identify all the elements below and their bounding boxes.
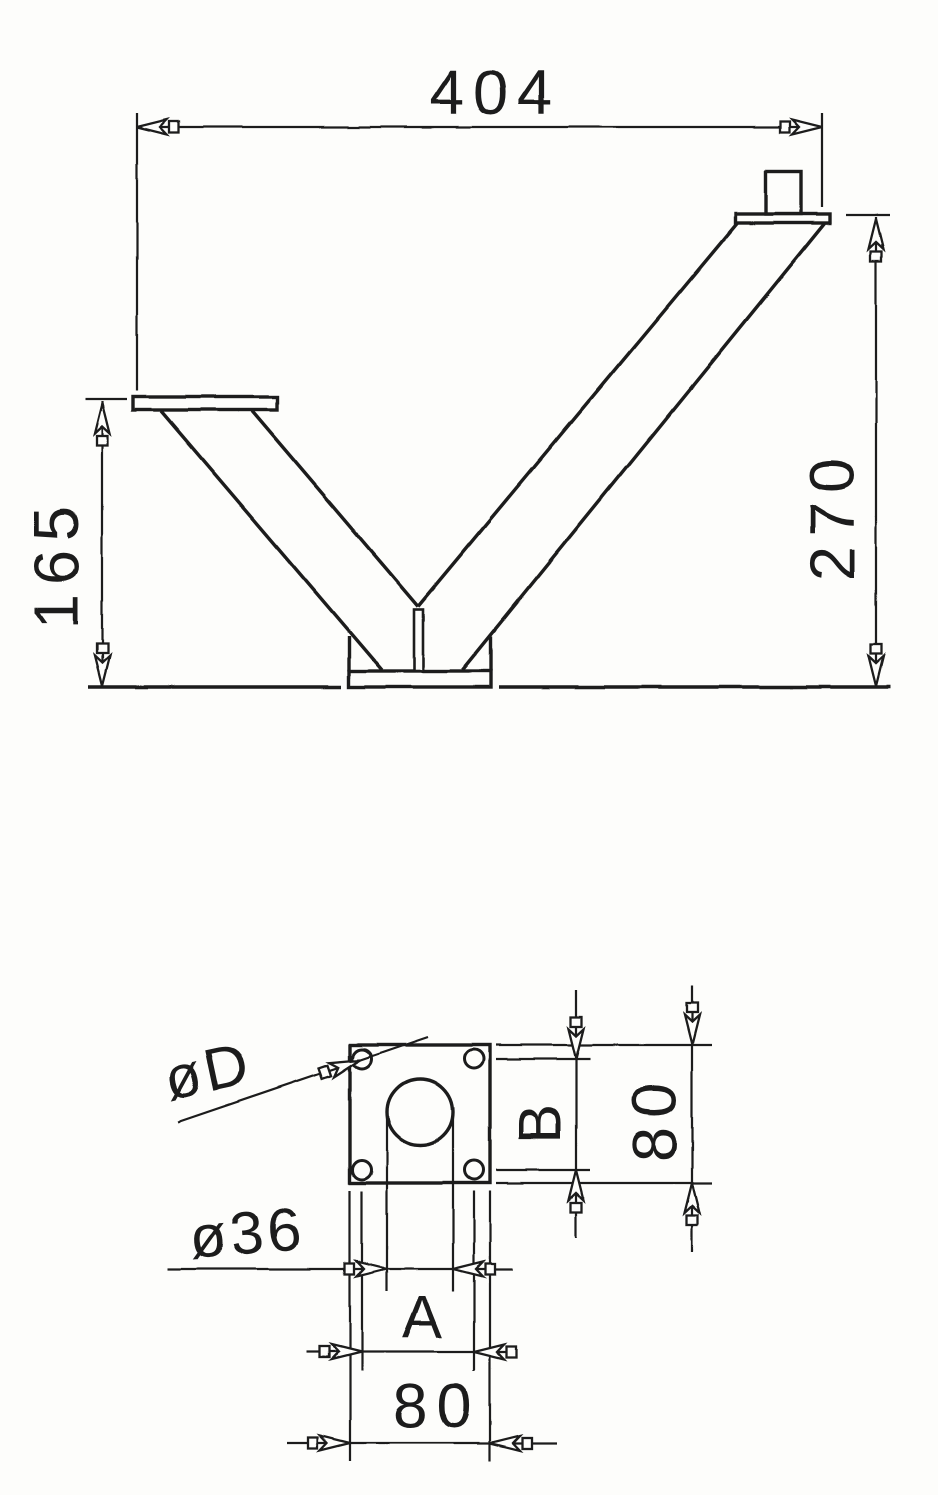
arrowhead	[474, 1345, 516, 1360]
arrowhead	[453, 1262, 495, 1277]
front-view: 404 165 270	[22, 58, 890, 687]
dim-hole-pitch-vertical-label: B	[507, 1100, 574, 1144]
arrowhead	[569, 1170, 584, 1212]
right-arm-outer-edge	[462, 223, 825, 670]
arrowhead	[685, 1183, 700, 1225]
left-flange-plate	[133, 397, 277, 410]
left-arm-outer-edge	[161, 411, 382, 670]
technical-drawing: 404 165 270	[0, 0, 938, 1495]
dim-plate-height-label: 80	[620, 1074, 690, 1162]
dim-right-height-label: 270	[798, 449, 868, 581]
center-rib	[414, 609, 423, 671]
plan-view: øD ø36 A 80 B	[158, 985, 712, 1461]
right-arm-inner-edge	[418, 223, 737, 606]
arrowhead	[869, 219, 884, 261]
dim-center-hole-label: ø36	[187, 1195, 308, 1272]
arrowhead	[320, 1345, 362, 1360]
left-arm-inner-edge	[252, 411, 418, 606]
dim-overall-width-label: 404	[429, 58, 561, 128]
arrowhead	[308, 1436, 350, 1451]
dim-hole-pitch-horizontal-label: A	[402, 1284, 446, 1351]
arrowhead	[137, 120, 179, 135]
arrowhead	[95, 644, 110, 686]
drawing-sheet: 404 165 270	[0, 0, 938, 1495]
arrowhead	[780, 120, 822, 135]
dim-left-height-label: 165	[22, 497, 92, 629]
arrowhead	[569, 1017, 584, 1059]
arrowhead	[869, 644, 884, 686]
arrowhead	[345, 1262, 387, 1277]
base-plate	[349, 671, 491, 687]
arrowhead	[490, 1436, 532, 1451]
arrowhead	[95, 403, 110, 445]
dim-plate-width-label: 80	[393, 1371, 481, 1441]
arrowhead	[685, 1003, 700, 1045]
right-flange-stub	[766, 172, 801, 214]
